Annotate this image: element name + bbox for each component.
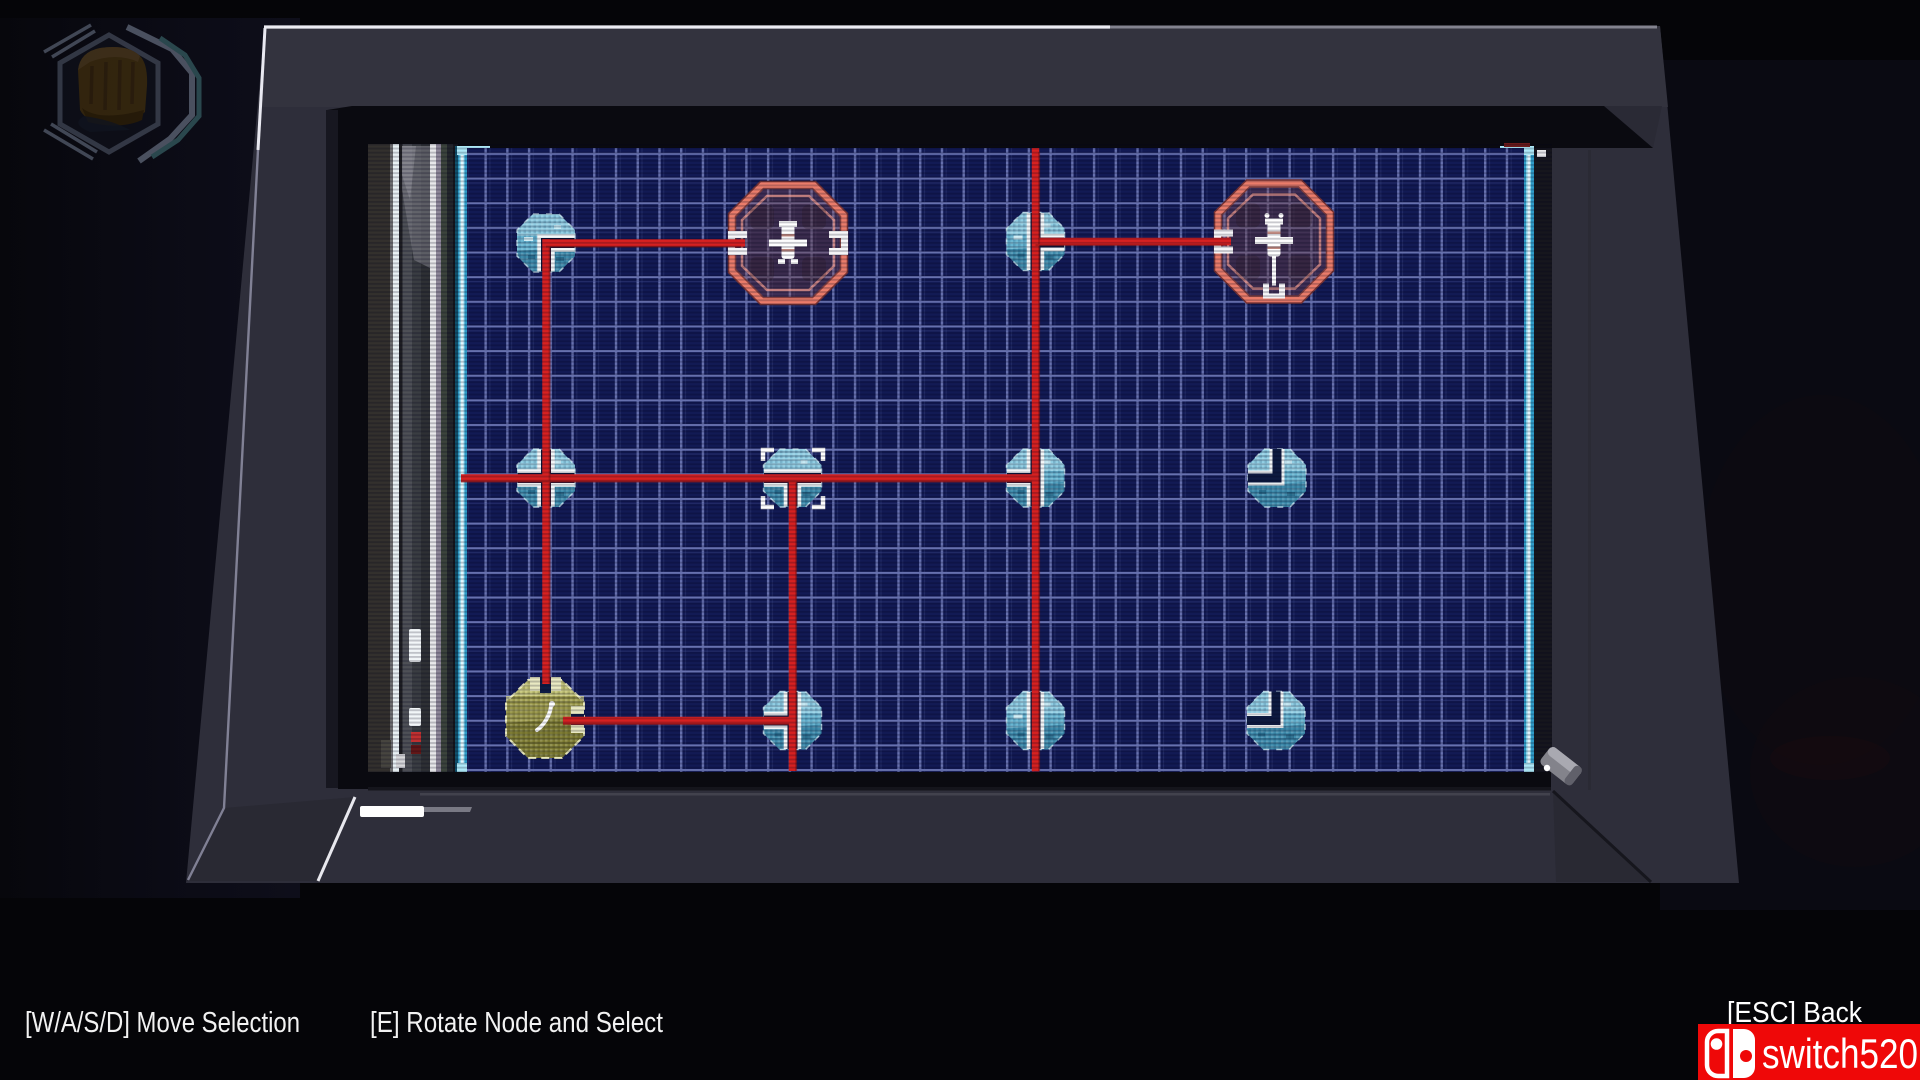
svg-text:[W/A/S/D] Move Selection: [W/A/S/D] Move Selection <box>25 1007 300 1039</box>
svg-text:switch520: switch520 <box>1762 1030 1918 1077</box>
svg-text:[E] Rotate Node and Select: [E] Rotate Node and Select <box>370 1007 663 1039</box>
